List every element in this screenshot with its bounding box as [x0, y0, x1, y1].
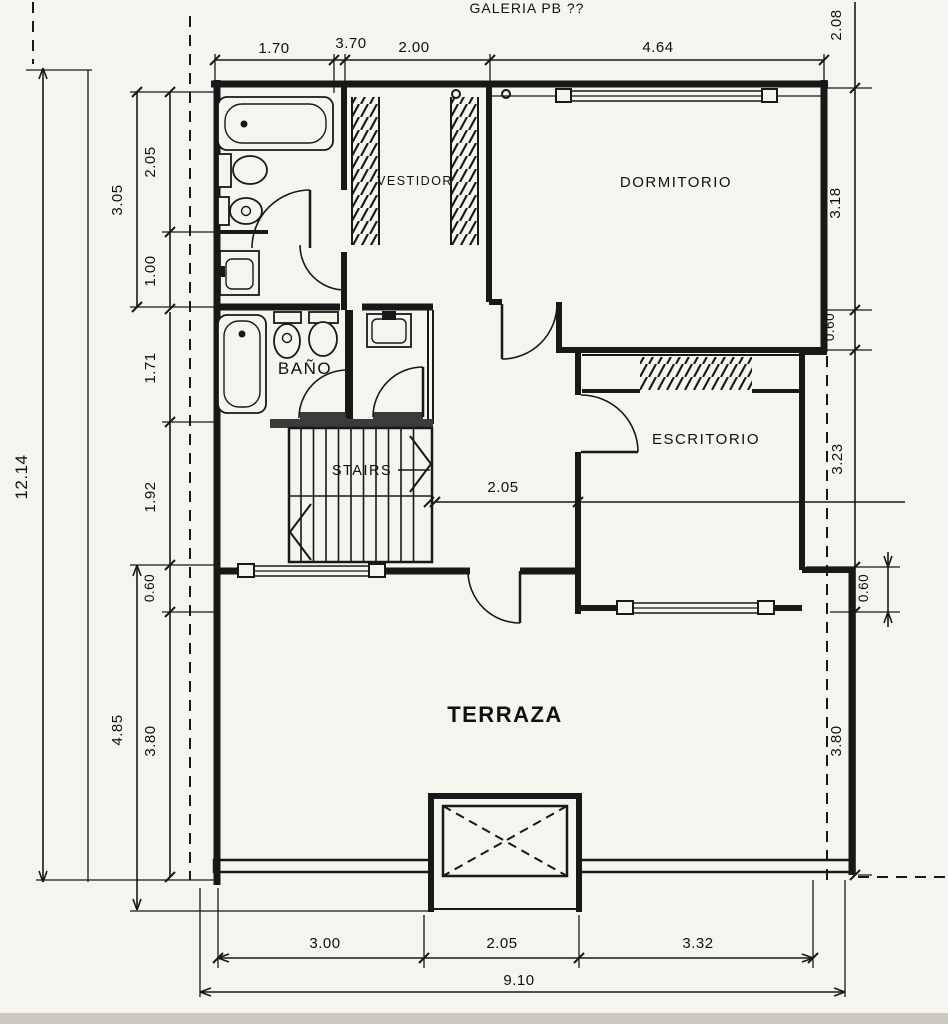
- room-label-vestidor: VESTIDOR: [377, 174, 453, 188]
- stairs-treads: [289, 428, 432, 562]
- room-label-stairs: STAIRS: [332, 463, 392, 479]
- floor-plan-page: GALERIA PB ?? 1.70 3.70 2.00 4.64 12.14 …: [0, 0, 948, 1024]
- door-arc-bathroom: [252, 190, 310, 248]
- dim-left-b: 2.05: [142, 146, 159, 177]
- dim-bottom-total: 9.10: [503, 972, 534, 989]
- stairs-top-band: [270, 419, 433, 428]
- door-arc-dormitorio: [502, 304, 557, 359]
- dim-left-f: 0.60: [142, 574, 157, 602]
- window-escritorio-bottom: [617, 601, 774, 614]
- door-arc-terraza: [468, 571, 520, 623]
- terraza-bottom-wall-right: [579, 860, 852, 872]
- dim-bottom-c: 3.32: [682, 935, 713, 952]
- door-arc-hall-sink: [373, 367, 423, 417]
- dim-right-f: 3.80: [828, 725, 845, 756]
- closet-vestidor-left: [352, 97, 379, 245]
- sink-bano: [367, 311, 411, 347]
- closet-vestidor-right: [451, 97, 478, 245]
- room-label-dormitorio: DORMITORIO: [620, 174, 732, 191]
- door-arc-bathroom-hall: [300, 245, 345, 290]
- dim-left-a: 3.05: [109, 184, 126, 215]
- dim-bottom-b: 2.05: [486, 935, 517, 952]
- column-marker-2: [502, 90, 510, 98]
- dimension-ticks: [132, 55, 860, 963]
- dim-left-total: 12.14: [12, 454, 31, 499]
- dim-right-c: 0.60: [822, 313, 837, 341]
- dim-top-a: 1.70: [258, 40, 289, 57]
- sink-top: [218, 251, 259, 295]
- dim-left-e: 1.92: [142, 481, 159, 512]
- room-label-bano: BAÑO: [278, 359, 332, 378]
- dim-top-d: 4.64: [642, 39, 673, 56]
- room-label-escritorio: ESCRITORIO: [652, 431, 760, 448]
- closet-escritorio: [640, 357, 752, 390]
- dim-right-a: 2.08: [828, 9, 845, 40]
- bathtub-top: [218, 97, 333, 150]
- bidet-bano: [274, 312, 301, 358]
- stairs-area: [270, 419, 433, 562]
- dim-top-b: 3.70: [335, 35, 366, 52]
- labels: GALERIA PB ?? 1.70 3.70 2.00 4.64 12.14 …: [12, 0, 871, 989]
- dim-left-g: 4.85: [109, 714, 126, 745]
- shaft-diagonals: [443, 806, 567, 876]
- window-terraza-top: [238, 564, 385, 577]
- shaft: [443, 806, 567, 876]
- bathtub-bano: [218, 315, 266, 413]
- plan-title: GALERIA PB ??: [470, 0, 585, 16]
- stairs-outline: [289, 428, 432, 562]
- outer-walls: [211, 80, 852, 885]
- dim-bottom-a: 3.00: [309, 935, 340, 952]
- dim-middle-a: 2.05: [487, 479, 518, 496]
- dim-left-c: 1.00: [142, 255, 159, 286]
- dim-left-d: 1.71: [142, 352, 159, 383]
- dim-right-b: 3.18: [827, 187, 844, 218]
- floor-plan-drawing: GALERIA PB ?? 1.70 3.70 2.00 4.64 12.14 …: [0, 0, 948, 1024]
- toilet-bano: [309, 312, 338, 356]
- window-dormitorio-top: [492, 89, 822, 102]
- toilet-top: [218, 154, 267, 187]
- terraza-bottom-wall-left: [214, 860, 431, 872]
- bidet-top: [218, 197, 262, 225]
- room-label-terraza: TERRAZA: [447, 702, 563, 727]
- column-marker-1: [452, 90, 460, 98]
- door-arc-escritorio: [581, 395, 638, 452]
- stairs-break-marks: [290, 436, 431, 560]
- dim-right-e: 0.60: [856, 574, 871, 602]
- dim-top-c: 2.00: [398, 39, 429, 56]
- closet-hatching: [352, 97, 752, 390]
- dim-right-d: 3.23: [829, 443, 846, 474]
- scan-edge-strip: [0, 1013, 948, 1024]
- dim-left-h: 3.80: [142, 725, 159, 756]
- interior-walls: [344, 84, 855, 912]
